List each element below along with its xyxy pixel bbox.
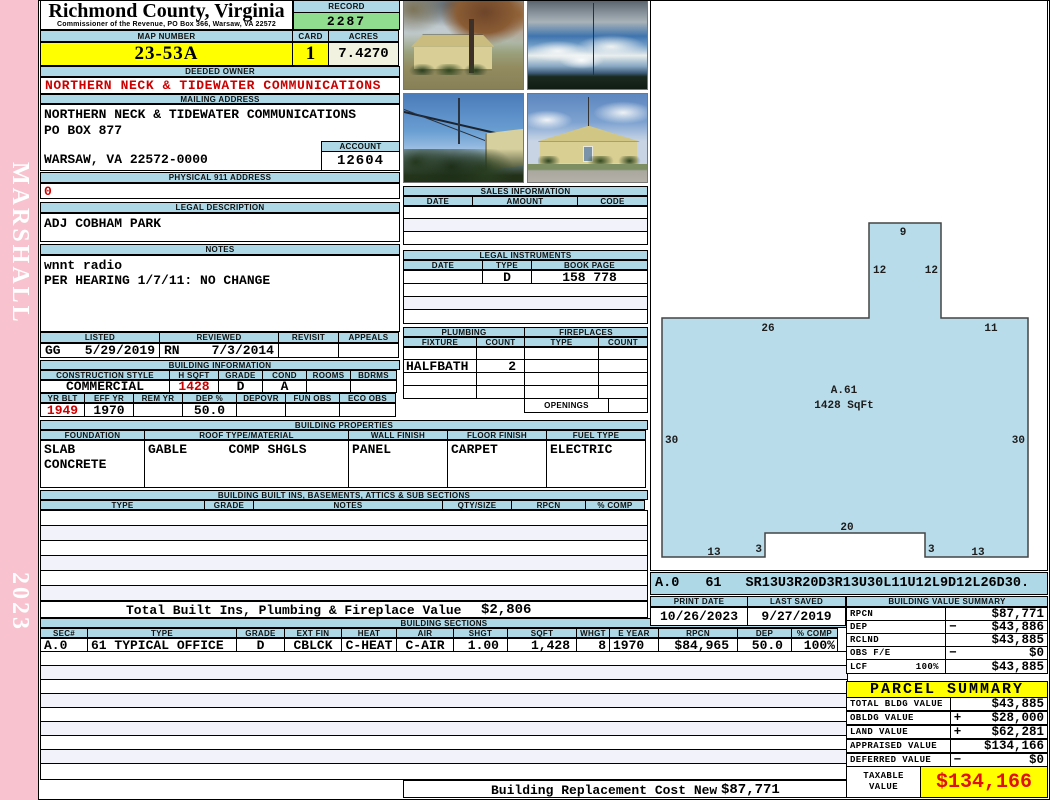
floor-finish-label: FLOOR FINISH: [447, 430, 547, 440]
parcel-bldg-value: $43,885: [964, 697, 1047, 711]
section-empty-row: [40, 763, 848, 780]
sec-extfin-label: EXT FIN: [284, 628, 342, 638]
builtin-empty-row: [40, 570, 648, 586]
dim-stem-left: 12: [873, 265, 886, 277]
bvs-rclnd-value: $43,885: [960, 633, 1047, 647]
dim-upper-left: 26: [761, 323, 774, 335]
sec-comp-label: % COMP: [791, 628, 838, 638]
builtin-empty-row: [40, 555, 648, 571]
sec-value: A.0: [40, 638, 88, 652]
grade-label: GRADE: [218, 370, 263, 380]
appeals-label: APPEALS: [338, 332, 399, 343]
instrument-date-label: DATE: [403, 260, 483, 270]
sec-shgt-value: 1.00: [453, 638, 508, 652]
builtin-qty-label: QTY/SIZE: [442, 500, 512, 510]
instrument-date-value: [403, 270, 483, 284]
sketch-box: 9 12 12 26 11 A.61 1428 SqFt 30 30 20 3 …: [650, 0, 1048, 571]
section-empty-row: [40, 721, 848, 736]
fireplace-empty-cell: [524, 372, 599, 386]
builtin-notes-label: NOTES: [253, 500, 443, 510]
dim-stem-right: 12: [925, 265, 938, 277]
reviewed-label: REVIEWED: [159, 332, 279, 343]
binder-strip-name: MARSHALL: [6, 162, 33, 325]
appeals-value: [338, 343, 399, 358]
dim-right: 30: [1012, 435, 1025, 447]
notes-box: wnnt radio PER HEARING 1/7/11: NO CHANGE: [40, 255, 400, 332]
acres-value: 7.4270: [328, 42, 399, 66]
plumbing-empty-cell: [476, 372, 525, 386]
parcel-bldg-label: TOTAL BLDG VALUE: [846, 697, 951, 711]
replacement-cost-row: Building Replacement Cost New $87,771: [403, 780, 848, 798]
dim-bottom-left: 13: [707, 547, 721, 559]
dim-notch-right: 3: [928, 544, 935, 556]
fixture-count-value: 2: [476, 359, 525, 373]
builtin-empty-row: [40, 540, 648, 556]
parcel-deferred-label: DEFERRED VALUE: [846, 753, 951, 767]
legal-description-value: ADJ COBHAM PARK: [40, 213, 400, 242]
record-box: RECORD 2287: [293, 0, 400, 30]
reviewed-date: 7/3/2014: [212, 343, 274, 358]
card-value: 1: [292, 42, 329, 66]
effyr-label: EFF YR: [84, 393, 134, 403]
ecoobs-value: [339, 403, 396, 417]
sales-empty-row: [403, 231, 648, 245]
record-value: 2287: [293, 12, 400, 30]
dim-upper-right: 11: [984, 323, 998, 335]
bvs-lcf-label: LCF 100%: [846, 659, 946, 674]
builtin-comp-label: % COMP: [585, 500, 645, 510]
wall-finish-label: WALL FINISH: [348, 430, 448, 440]
built-total-row: Total Built Ins, Plumbing & Fireplace Va…: [40, 601, 648, 618]
parcel-appraised-label: APPRAISED VALUE: [846, 739, 951, 753]
sec-grade-label: GRADE: [236, 628, 285, 638]
mailing-line1: NORTHERN NECK & TIDEWATER COMMUNICATIONS: [44, 107, 356, 122]
instrument-type-label: TYPE: [482, 260, 532, 270]
dim-bottom-right: 13: [971, 547, 985, 559]
dim-top: 9: [900, 227, 907, 239]
rooms-label: ROOMS: [306, 370, 351, 380]
print-date-label: PRINT DATE: [650, 596, 748, 607]
taxable-value: $134,166: [920, 766, 1048, 798]
roof-value: GABLE COMP SHGLS: [144, 440, 349, 488]
bvs-dep-op: −: [946, 620, 960, 634]
building-section-row: A.0 61 TYPICAL OFFICE D CBLCK C-HEAT C-A…: [40, 638, 838, 652]
replacement-cost-label: Building Replacement Cost New: [491, 783, 717, 798]
property-record-card: MARSHALL 2023 Richmond County, Virginia …: [0, 0, 1050, 800]
section-empty-row: [40, 693, 848, 708]
page-title: Richmond County, Virginia: [41, 1, 292, 21]
instrument-bookpage-value: 158 778: [531, 270, 648, 284]
building-value-summary-title: BUILDING VALUE SUMMARY: [846, 596, 1048, 607]
binder-strip: MARSHALL 2023: [0, 0, 38, 800]
instrument-empty-row: [403, 283, 648, 297]
instrument-bookpage-label: BOOK PAGE: [531, 260, 648, 270]
instrument-type-value: D: [482, 270, 532, 284]
yrblt-value: 1949: [40, 403, 85, 417]
plumbing-empty-cell: [403, 385, 477, 399]
bvs-dep-label: DEP: [846, 620, 946, 634]
grade-value: D: [218, 380, 263, 393]
roof-material-value: COMP SHGLS: [187, 442, 348, 457]
cond-label: COND: [262, 370, 307, 380]
parcel-land-value: $62,281: [964, 725, 1047, 739]
bvs-lcf-name: LCF: [850, 662, 867, 672]
fireplace-type-label: TYPE: [524, 337, 599, 347]
builtin-grade-label: GRADE: [204, 500, 254, 510]
trace-section: A.0: [655, 576, 679, 591]
parcel-appraised-value: $134,166: [964, 739, 1047, 753]
sec-shgt-label: SHGT: [453, 628, 508, 638]
remyr-value: [133, 403, 183, 417]
section-empty-row: [40, 665, 848, 680]
bvs-obs-label: OBS F/E: [846, 646, 946, 660]
fixture-value: HALFBATH: [403, 359, 477, 373]
title-box: Richmond County, Virginia Commissioner o…: [40, 0, 293, 30]
section-empty-row: [40, 679, 848, 694]
dim-notch-left: 3: [755, 544, 762, 556]
mailing-line2: PO BOX 877: [44, 123, 122, 138]
fuel-type-label: FUEL TYPE: [546, 430, 646, 440]
sec-extfin-value: CBLCK: [284, 638, 342, 652]
sec-dep-label: DEP: [737, 628, 792, 638]
depovr-value: [236, 403, 286, 417]
fireplace-count-label: COUNT: [598, 337, 648, 347]
openings-value: [608, 398, 648, 413]
fireplace-empty-cell: [598, 385, 648, 399]
floor-finish-value: CARPET: [447, 440, 547, 488]
foundation-line1: SLAB: [44, 442, 75, 457]
builtin-empty-row: [40, 510, 648, 526]
plumbing-empty-cell: [476, 385, 525, 399]
legal-instruments-title: LEGAL INSTRUMENTS: [403, 250, 648, 260]
card-label: CARD: [292, 30, 329, 42]
fixture-label: FIXTURE: [403, 337, 477, 347]
sales-date-label: DATE: [403, 196, 473, 206]
account-box: ACCOUNT 12604: [321, 141, 400, 171]
sec-label: SEC#: [40, 628, 88, 638]
map-number-value: 23-53A: [40, 42, 293, 66]
physical-address-label: PHYSICAL 911 ADDRESS: [40, 172, 400, 183]
mailing-address-label: MAILING ADDRESS: [40, 94, 400, 104]
sec-heat-value: C-HEAT: [341, 638, 397, 652]
sec-eyear-value: 1970: [609, 638, 659, 652]
binder-strip-year: 2023: [6, 572, 33, 632]
physical-address-value: 0: [40, 183, 400, 199]
builtin-empty-row: [40, 585, 648, 601]
bvs-rpcn-value: $87,771: [960, 607, 1047, 621]
sec-heat-label: HEAT: [341, 628, 397, 638]
depovr-label: DEPOVR: [236, 393, 286, 403]
photo-antenna-mast: [593, 3, 594, 75]
sketch-area-id: A.61: [831, 385, 858, 397]
fireplaces-title: FIREPLACES: [524, 327, 648, 337]
photo-clouds: [528, 27, 647, 71]
sales-amount-label: AMOUNT: [472, 196, 578, 206]
sec-rpcn-value: $84,965: [658, 638, 738, 652]
parcel-obldg-label: OBLDG VALUE: [846, 711, 951, 725]
foundation-value: SLAB CONCRETE: [40, 440, 145, 488]
built-total-label: Total Built Ins, Plumbing & Fireplace Va…: [126, 603, 461, 618]
remyr-label: REM YR: [133, 393, 183, 403]
sketch-area-sqft: 1428 SqFt: [814, 400, 873, 412]
sec-whgt-label: WHGT: [576, 628, 610, 638]
sales-empty-row: [403, 218, 648, 232]
trace-number: 61: [705, 576, 721, 591]
hsqft-value: 1428: [169, 380, 219, 393]
construction-style-value: COMMERCIAL: [40, 380, 170, 393]
photo-tower-mast: [458, 98, 460, 144]
openings-label: OPENINGS: [524, 398, 609, 413]
dim-notch-top: 20: [840, 522, 853, 534]
bvs-dep-value: $43,886: [960, 620, 1047, 634]
sec-sqft-label: SQFT: [507, 628, 577, 638]
bdrms-value: [350, 380, 397, 393]
print-date-value: 10/26/2023: [650, 607, 748, 626]
bvs-obs-value: $0: [960, 646, 1047, 660]
fixture-count-label: COUNT: [476, 337, 525, 347]
page-subtitle: Commissioner of the Revenue, PO Box 366,…: [41, 21, 292, 28]
photo-grid: [403, 0, 648, 183]
photo-house-roof: [411, 34, 494, 46]
listed-by: GG: [45, 343, 61, 358]
roof-type-value: GABLE: [148, 442, 187, 457]
mailing-line3: WARSAW, VA 22572-0000: [44, 152, 208, 167]
account-value: 12604: [321, 151, 400, 171]
wall-finish-value: PANEL: [348, 440, 448, 488]
sec-comp-value: 100%: [791, 638, 838, 652]
reviewed-by: RN: [164, 343, 180, 358]
legal-description-label: LEGAL DESCRIPTION: [40, 202, 400, 213]
construction-style-label: CONSTRUCTION STYLE: [40, 370, 170, 380]
taxable-label-line1: TAXABLE: [863, 771, 904, 782]
ecoobs-label: ECO OBS: [339, 393, 396, 403]
photo-building-front: [527, 93, 648, 183]
listed-date: 5/29/2019: [85, 343, 155, 358]
photo-sky-tower: [527, 0, 648, 90]
fireplace-empty-cell: [524, 385, 599, 399]
parcel-obldg-op: +: [951, 711, 964, 725]
sales-information-title: SALES INFORMATION: [403, 186, 648, 196]
parcel-obldg-value: $28,000: [964, 711, 1047, 725]
sec-sqft-value: 1,428: [507, 638, 577, 652]
building-information-title: BUILDING INFORMATION: [40, 360, 400, 370]
section-empty-row: [40, 735, 848, 750]
photo-house-oblique: [403, 0, 524, 90]
last-saved-label: LAST SAVED: [747, 596, 846, 607]
building-sketch: 9 12 12 26 11 A.61 1428 SqFt 30 30 20 3 …: [651, 1, 1047, 570]
section-empty-row: [40, 707, 848, 722]
builtin-type-label: TYPE: [40, 500, 205, 510]
funobs-label: FUN OBS: [285, 393, 340, 403]
notes-label: NOTES: [40, 244, 400, 255]
foundation-label: FOUNDATION: [40, 430, 145, 440]
dim-left: 30: [665, 435, 678, 447]
deppct-value: 50.0: [182, 403, 237, 417]
hsqft-label: H SQFT: [169, 370, 219, 380]
plumbing-empty-cell: [403, 372, 477, 386]
parcel-summary-title: PARCEL SUMMARY: [846, 681, 1048, 698]
listed-label: LISTED: [40, 332, 160, 343]
deeded-owner-value: NORTHERN NECK & TIDEWATER COMMUNICATIONS: [40, 77, 400, 94]
photo-ground: [528, 164, 647, 182]
sketch-trace-band: A.0 61 SR13U3R20D3R13U30L11U12L9D12L26D3…: [650, 572, 1048, 595]
yrblt-label: YR BLT: [40, 393, 85, 403]
map-number-label: MAP NUMBER: [40, 30, 293, 42]
parcel-land-label: LAND VALUE: [846, 725, 951, 739]
fuel-type-value: ELECTRIC: [546, 440, 646, 488]
sec-rpcn-label: RPCN: [658, 628, 738, 638]
photo-bushes: [409, 64, 498, 75]
photo-treeline: [404, 149, 523, 182]
section-empty-row: [40, 651, 848, 666]
taxable-value-label: TAXABLE VALUE: [846, 766, 921, 798]
parcel-land-op: +: [951, 725, 964, 739]
openings-spacer: [403, 398, 525, 413]
bvs-obs-op: −: [946, 646, 960, 660]
funobs-value: [285, 403, 340, 417]
fireplace-empty-cell: [598, 359, 648, 373]
acres-label: ACRES: [328, 30, 399, 42]
mailing-address-box: NORTHERN NECK & TIDEWATER COMMUNICATIONS…: [40, 104, 400, 171]
foundation-line2: CONCRETE: [44, 457, 106, 472]
deppct-label: DEP %: [182, 393, 237, 403]
replacement-cost-value: $87,771: [721, 782, 780, 798]
instrument-empty-row: [403, 309, 648, 324]
reviewed-value: RN 7/3/2014: [159, 343, 279, 358]
builtin-rpcn-label: RPCN: [511, 500, 586, 510]
sec-type-label: TYPE: [87, 628, 237, 638]
effyr-value: 1970: [84, 403, 134, 417]
section-empty-row: [40, 749, 848, 764]
last-saved-value: 9/27/2019: [747, 607, 846, 626]
revisit-label: REVISIT: [278, 332, 339, 343]
bvs-rclnd-label: RCLND: [846, 633, 946, 647]
plumbing-title: PLUMBING: [403, 327, 525, 337]
sec-type-value: 61 TYPICAL OFFICE: [87, 638, 237, 652]
instrument-empty-row: [403, 296, 648, 310]
taxable-label-line2: VALUE: [869, 782, 898, 793]
photo-tower-side: [403, 93, 524, 183]
notes-line2: PER HEARING 1/7/11: NO CHANGE: [44, 273, 270, 288]
fireplace-empty-cell: [524, 359, 599, 373]
sales-code-label: CODE: [577, 196, 648, 206]
building-properties-title: BUILDING PROPERTIES: [40, 420, 648, 430]
sec-eyear-label: E YEAR: [609, 628, 659, 638]
rooms-value: [306, 380, 351, 393]
bvs-lcf-value: $43,885: [960, 660, 1047, 674]
deeded-owner-label: DEEDED OWNER: [40, 66, 400, 77]
built-total-value: $2,806: [481, 602, 531, 618]
cond-value: A: [262, 380, 307, 393]
revisit-value: [278, 343, 339, 358]
builtin-empty-row: [40, 525, 648, 541]
bvs-rpcn-label: RPCN: [846, 607, 946, 621]
sec-air-label: AIR: [396, 628, 454, 638]
sec-whgt-value: 8: [576, 638, 610, 652]
notes-line1: wnnt radio: [44, 258, 122, 273]
sec-dep-value: 50.0: [737, 638, 792, 652]
sec-grade-value: D: [236, 638, 285, 652]
bvs-lcf-pct: 100%: [916, 662, 939, 672]
bdrms-label: BDRMS: [350, 370, 397, 380]
parcel-deferred-op: −: [951, 753, 964, 767]
builtins-title: BUILDING BUILT INS, BASEMENTS, ATTICS & …: [40, 490, 648, 500]
parcel-deferred-value: $0: [964, 753, 1047, 767]
roof-label: ROOF TYPE/MATERIAL: [144, 430, 349, 440]
listed-value: GG 5/29/2019: [40, 343, 160, 358]
trace-vector: SR13U3R20D3R13U30L11U12L9D12L26D30.: [746, 576, 1030, 591]
sec-air-value: C-AIR: [396, 638, 454, 652]
fireplace-empty-cell: [598, 372, 648, 386]
